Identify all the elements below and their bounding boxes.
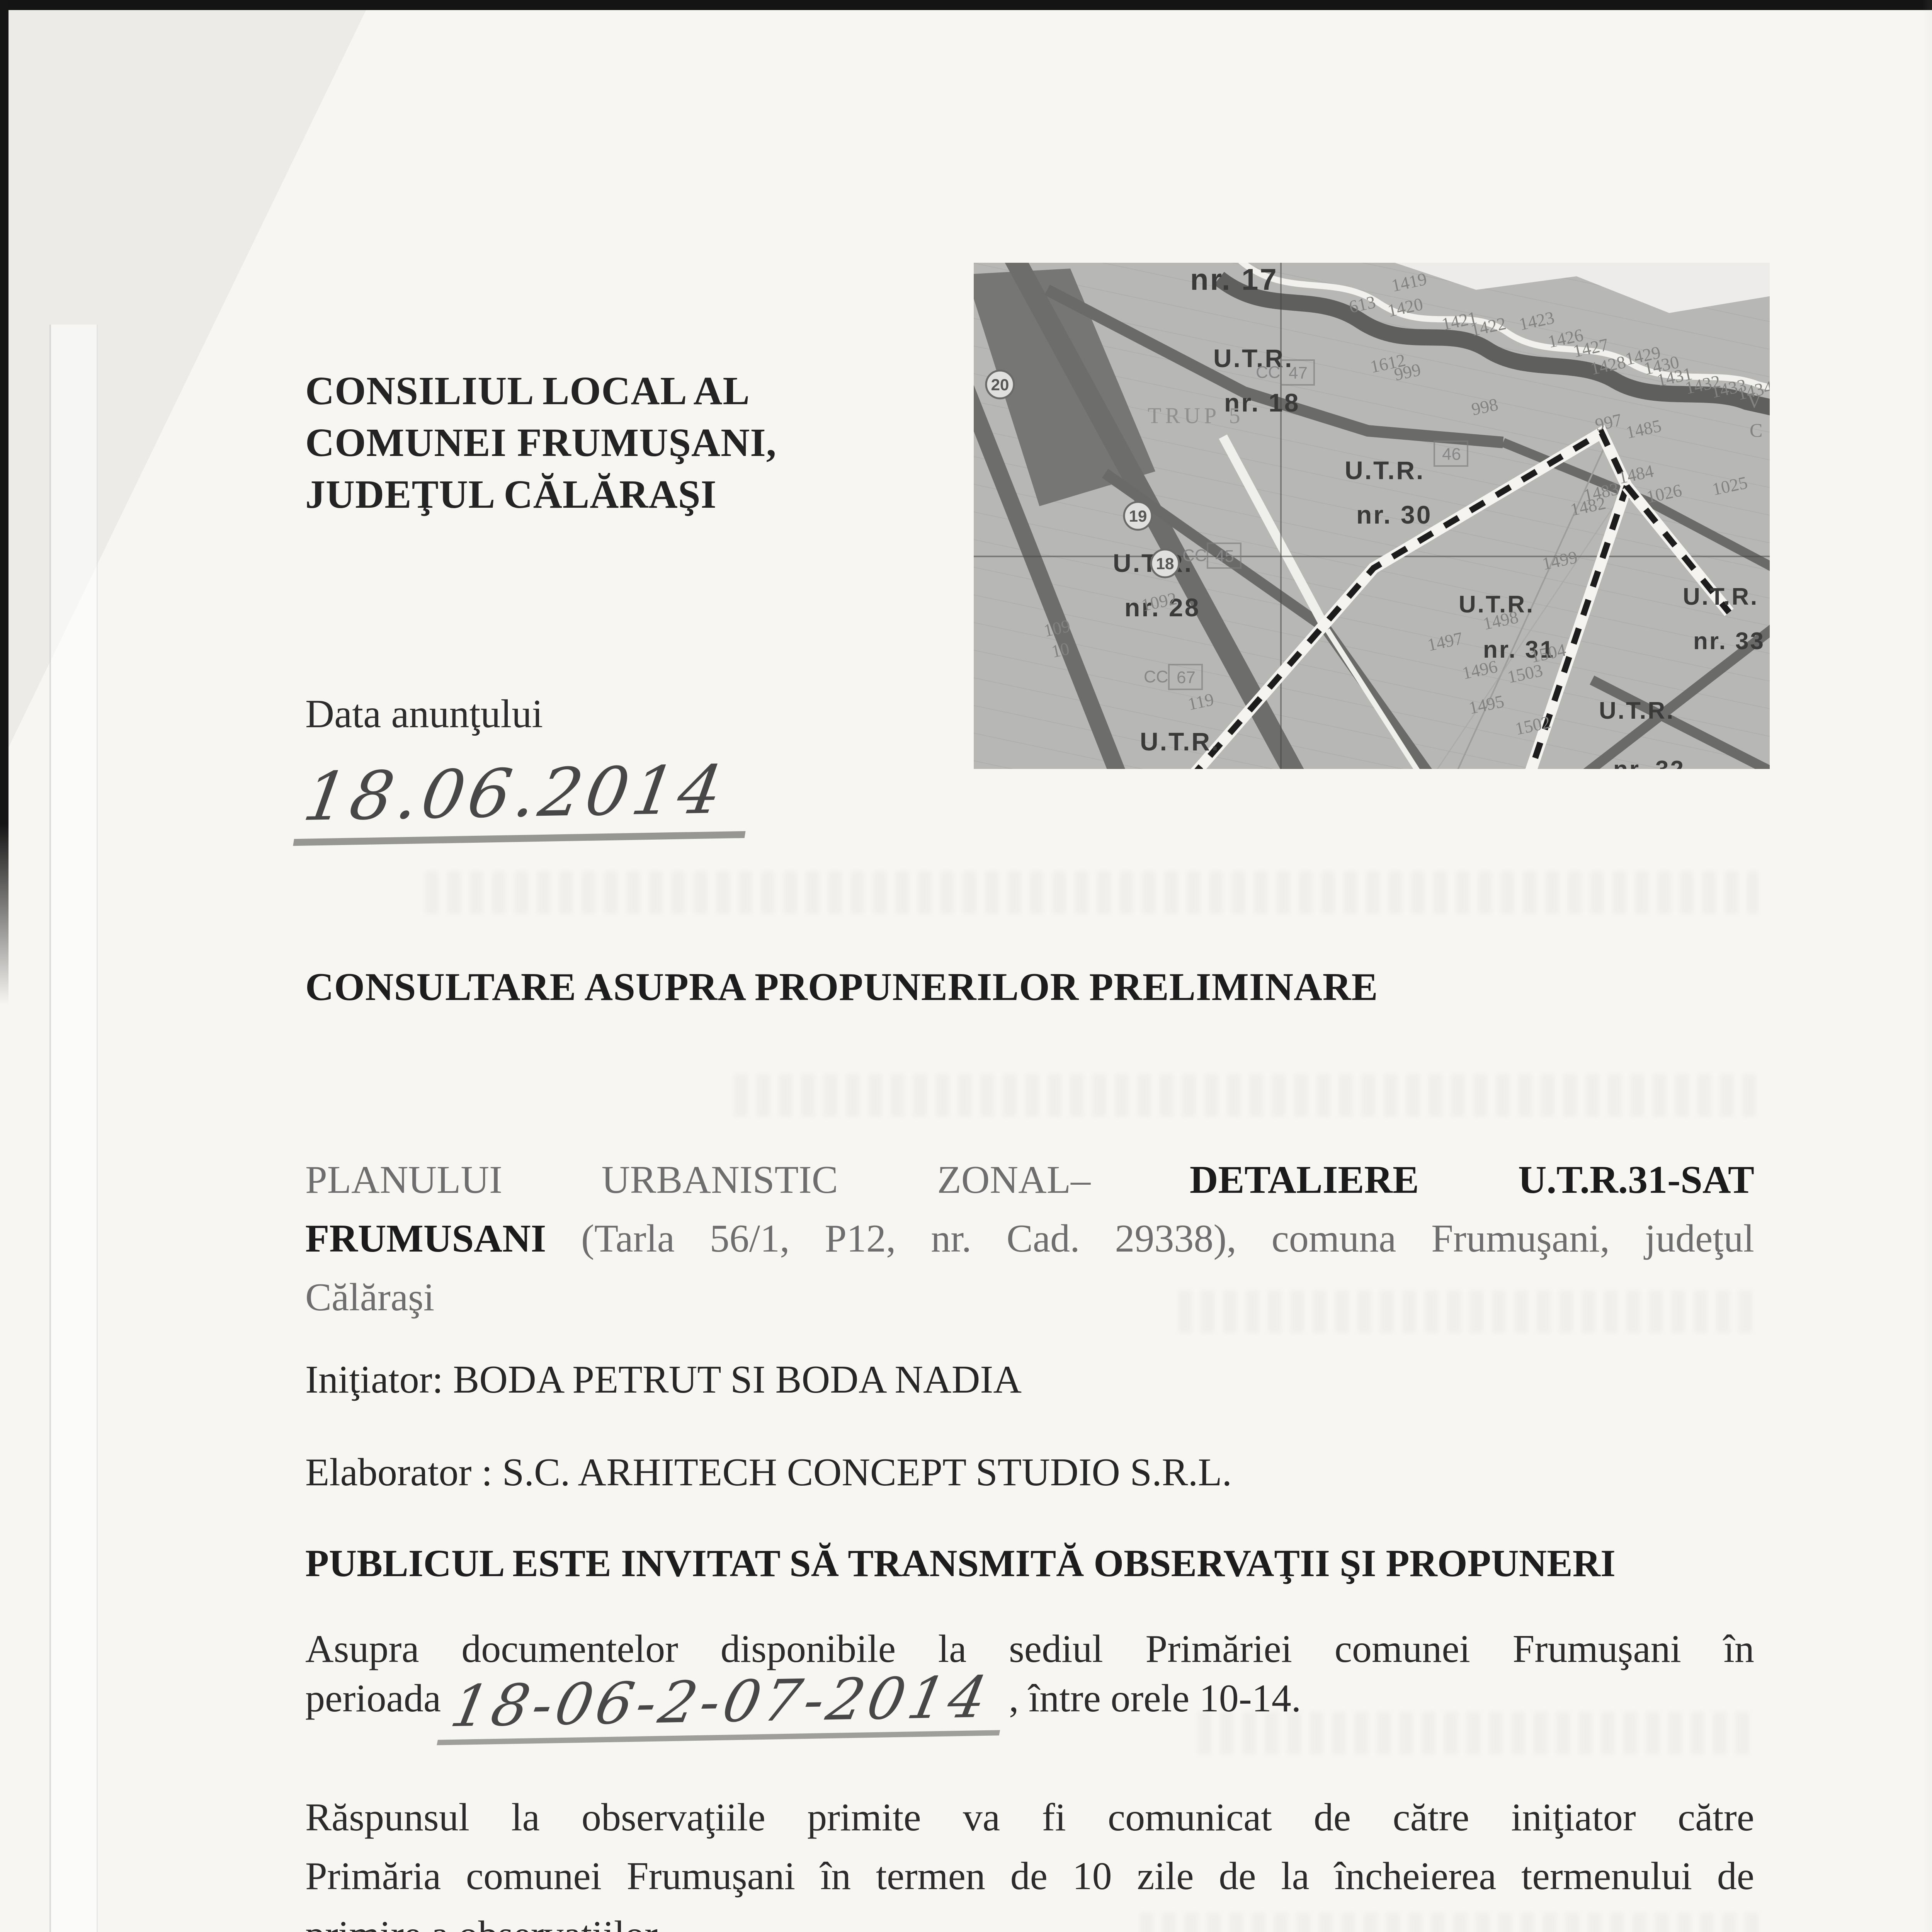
elaborator-line: Elaborator : S.C. ARHITECH CONCEPT STUDI…	[305, 1450, 1232, 1495]
zoning-map: nr. 17U.T.R.nr. 18U.T.R.nr. 30U.T.R.nr. …	[974, 263, 1770, 769]
map-utr-label: nr. 30	[1356, 500, 1432, 529]
plan-line-1: PLANULUI URBANISTIC ZONAL– DETALIERE U.T…	[305, 1151, 1754, 1209]
map-cc-label: CC	[1144, 667, 1168, 686]
map-circle-badge-number: 19	[1129, 507, 1147, 525]
map-cc-box-number: 67	[1177, 668, 1196, 687]
asupra-period-prefix: perioada	[305, 1677, 441, 1720]
map-utr-label: nr. 17	[1190, 263, 1278, 296]
ink-bleed-smudge	[734, 1074, 1758, 1117]
raspuns-paragraph: Răspunsul la observaţiile primite va fi …	[305, 1788, 1754, 1932]
institution-line: JUDEŢUL CĂLĂRAŞI	[305, 469, 1078, 520]
map-cc-label: CC	[1182, 546, 1207, 565]
map-utr-label: TRUP 5	[1148, 403, 1244, 428]
map-utr-label: U.T.R.	[1140, 727, 1220, 756]
raspuns-line-3: primire a observaţiilor.	[305, 1906, 1754, 1932]
map-cc-box-number: 45	[1215, 547, 1234, 566]
map-circle-badge-number: 20	[991, 376, 1009, 394]
map-utr-label: U.T.R.	[1599, 697, 1675, 724]
map-utr-label: U.T.R.	[1683, 583, 1759, 610]
zoning-map-svg: nr. 17U.T.R.nr. 18U.T.R.nr. 30U.T.R.nr. …	[974, 263, 1770, 769]
institution-header: CONSILIUL LOCAL AL COMUNEI FRUMUŞANI, JU…	[305, 365, 1078, 520]
scan-edge-left	[0, 0, 9, 1005]
asupra-hours: , între orele 10-14.	[1009, 1677, 1301, 1720]
heading-consultare: CONSULTARE ASUPRA PROPUNERILOR PRELIMINA…	[305, 964, 1378, 1010]
asupra-line-2: perioada18-06-2-07-2014, între orele 10-…	[305, 1668, 1301, 1740]
ink-bleed-smudge	[425, 871, 1758, 914]
handwritten-date: 18.06.2014	[293, 750, 758, 846]
map-cc-label: CC	[1256, 363, 1281, 382]
institution-line: CONSILIUL LOCAL AL	[305, 365, 1078, 417]
heading-publicul: PUBLICUL ESTE INVITAT SĂ TRANSMITĂ OBSER…	[305, 1541, 1616, 1585]
map-utr-label: nr. 33	[1693, 628, 1765, 655]
scan-edge-top	[0, 0, 1932, 10]
institution-line: COMUNEI FRUMUŞANI,	[305, 417, 1078, 469]
date-label: Data anunţului	[305, 691, 543, 737]
map-utr-label: C	[1750, 419, 1762, 441]
scanned-page: CONSILIUL LOCAL AL COMUNEI FRUMUŞANI, JU…	[0, 0, 1932, 1932]
map-utr-label: nr. 32	[1613, 756, 1685, 769]
scan-edge-right	[1922, 0, 1932, 1932]
plan-title-bold: DETALIERE U.T.R.31-SAT	[1190, 1158, 1754, 1202]
plan-line-2: FRUMUSANI (Tarla 56/1, P12, nr. Cad. 293…	[305, 1209, 1754, 1268]
handwritten-period: 18-06-2-07-2014	[437, 1663, 1013, 1745]
plan-title-bold: FRUMUSANI	[305, 1217, 546, 1260]
plan-paragraph: PLANULUI URBANISTIC ZONAL– DETALIERE U.T…	[305, 1151, 1754, 1327]
raspuns-line-1: Răspunsul la observaţiile primite va fi …	[305, 1788, 1754, 1847]
plan-line-3: Călăraşi	[305, 1268, 1754, 1327]
plan-cadastral-ref: (Tarla 56/1, P12, nr. Cad. 29338),	[581, 1217, 1236, 1260]
initiator-line: Iniţiator: BODA PETRUT SI BODA NADIA	[305, 1357, 1022, 1402]
page-fold-line	[49, 325, 98, 1932]
map-circle-badge-number: 18	[1156, 554, 1174, 573]
map-cc-box-number: 46	[1442, 445, 1461, 464]
plan-location: comuna Frumuşani, judeţul	[1272, 1217, 1754, 1260]
raspuns-line-2: Primăria comunei Frumuşani în termen de …	[305, 1847, 1754, 1906]
plan-title-gray: PLANULUI URBANISTIC ZONAL–	[305, 1158, 1090, 1202]
map-utr-label: U.T.R.	[1345, 456, 1425, 485]
map-cc-box-number: 47	[1289, 364, 1308, 383]
